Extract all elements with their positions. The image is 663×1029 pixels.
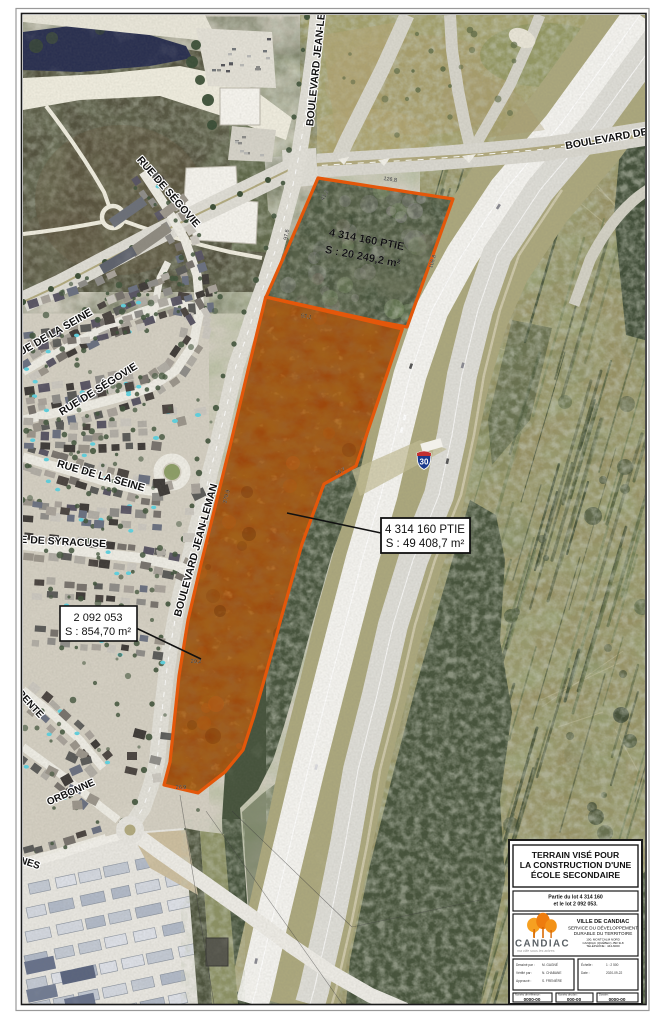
svg-text:4 314 160 PTIE: 4 314 160 PTIE <box>385 524 465 536</box>
svg-text:29,2: 29,2 <box>191 659 202 665</box>
svg-text:000-00: 000-00 <box>567 997 582 1002</box>
svg-text:S : 854,70 m²: S : 854,70 m² <box>65 626 131 638</box>
svg-text:M. GAGNÉ: M. GAGNÉ <box>542 962 558 967</box>
svg-text:TÉLÉPHONE : 444-6000: TÉLÉPHONE : 444-6000 <box>586 943 620 948</box>
svg-text:ma ville sous les arbres: ma ville sous les arbres <box>517 949 555 953</box>
svg-text:ÉCOLE SECONDAIRE: ÉCOLE SECONDAIRE <box>531 870 621 880</box>
svg-text:1 : 2 500: 1 : 2 500 <box>606 963 619 967</box>
svg-text:LA CONSTRUCTION D'UNE: LA CONSTRUCTION D'UNE <box>520 860 632 870</box>
svg-text:30: 30 <box>420 458 429 467</box>
svg-text:0000-00: 0000-00 <box>609 997 626 1002</box>
svg-text:2020-09-22: 2020-09-22 <box>606 971 623 975</box>
svg-text:Vérifié par :: Vérifié par : <box>516 971 532 975</box>
svg-text:Partie du lot 4 314 160: Partie du lot 4 314 160 <box>548 895 603 901</box>
svg-text:Dessiné par :: Dessiné par : <box>516 963 535 967</box>
svg-text:Échelle :: Échelle : <box>581 962 593 967</box>
svg-text:N. CHABANE: N. CHABANE <box>542 971 561 975</box>
svg-text:DURABLE DU TERRITOIRE: DURABLE DU TERRITOIRE <box>574 931 633 936</box>
svg-text:26,9: 26,9 <box>176 785 187 791</box>
svg-text:S : 49 408,7 m²: S : 49 408,7 m² <box>386 538 465 550</box>
svg-text:2 092 053: 2 092 053 <box>74 612 123 624</box>
svg-text:Date :: Date : <box>581 971 590 975</box>
svg-text:et le lot 2 092 053.: et le lot 2 092 053. <box>553 902 598 908</box>
svg-text:VILLE DE CANDIAC: VILLE DE CANDIAC <box>577 919 630 925</box>
svg-text:S. FRENIÈRE: S. FRENIÈRE <box>542 978 562 983</box>
svg-text:Approuvé :: Approuvé : <box>516 979 532 983</box>
svg-text:0000-00: 0000-00 <box>524 997 541 1002</box>
svg-text:TERRAIN VISÉ POUR: TERRAIN VISÉ POUR <box>532 850 620 860</box>
svg-text:SERVICE DU DÉVELOPPEMENT: SERVICE DU DÉVELOPPEMENT <box>568 925 638 931</box>
